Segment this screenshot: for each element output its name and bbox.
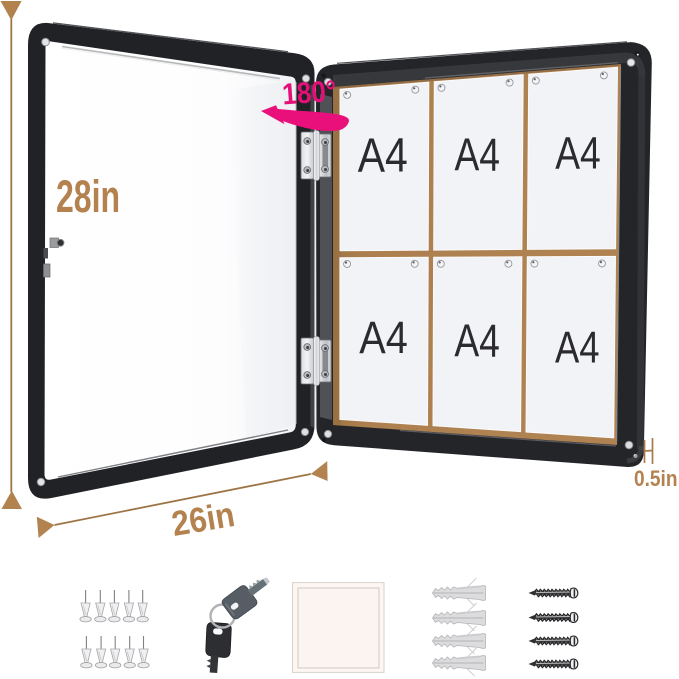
svg-text:0.5in: 0.5in [634, 466, 678, 491]
svg-text:A4: A4 [358, 129, 408, 182]
svg-text:180°: 180° [281, 75, 337, 112]
svg-text:A4: A4 [555, 128, 601, 179]
svg-text:A4: A4 [555, 323, 600, 372]
svg-text:A4: A4 [454, 315, 500, 367]
svg-text:A4: A4 [359, 312, 408, 363]
svg-text:28in: 28in [56, 171, 120, 222]
svg-text:A4: A4 [454, 128, 500, 180]
